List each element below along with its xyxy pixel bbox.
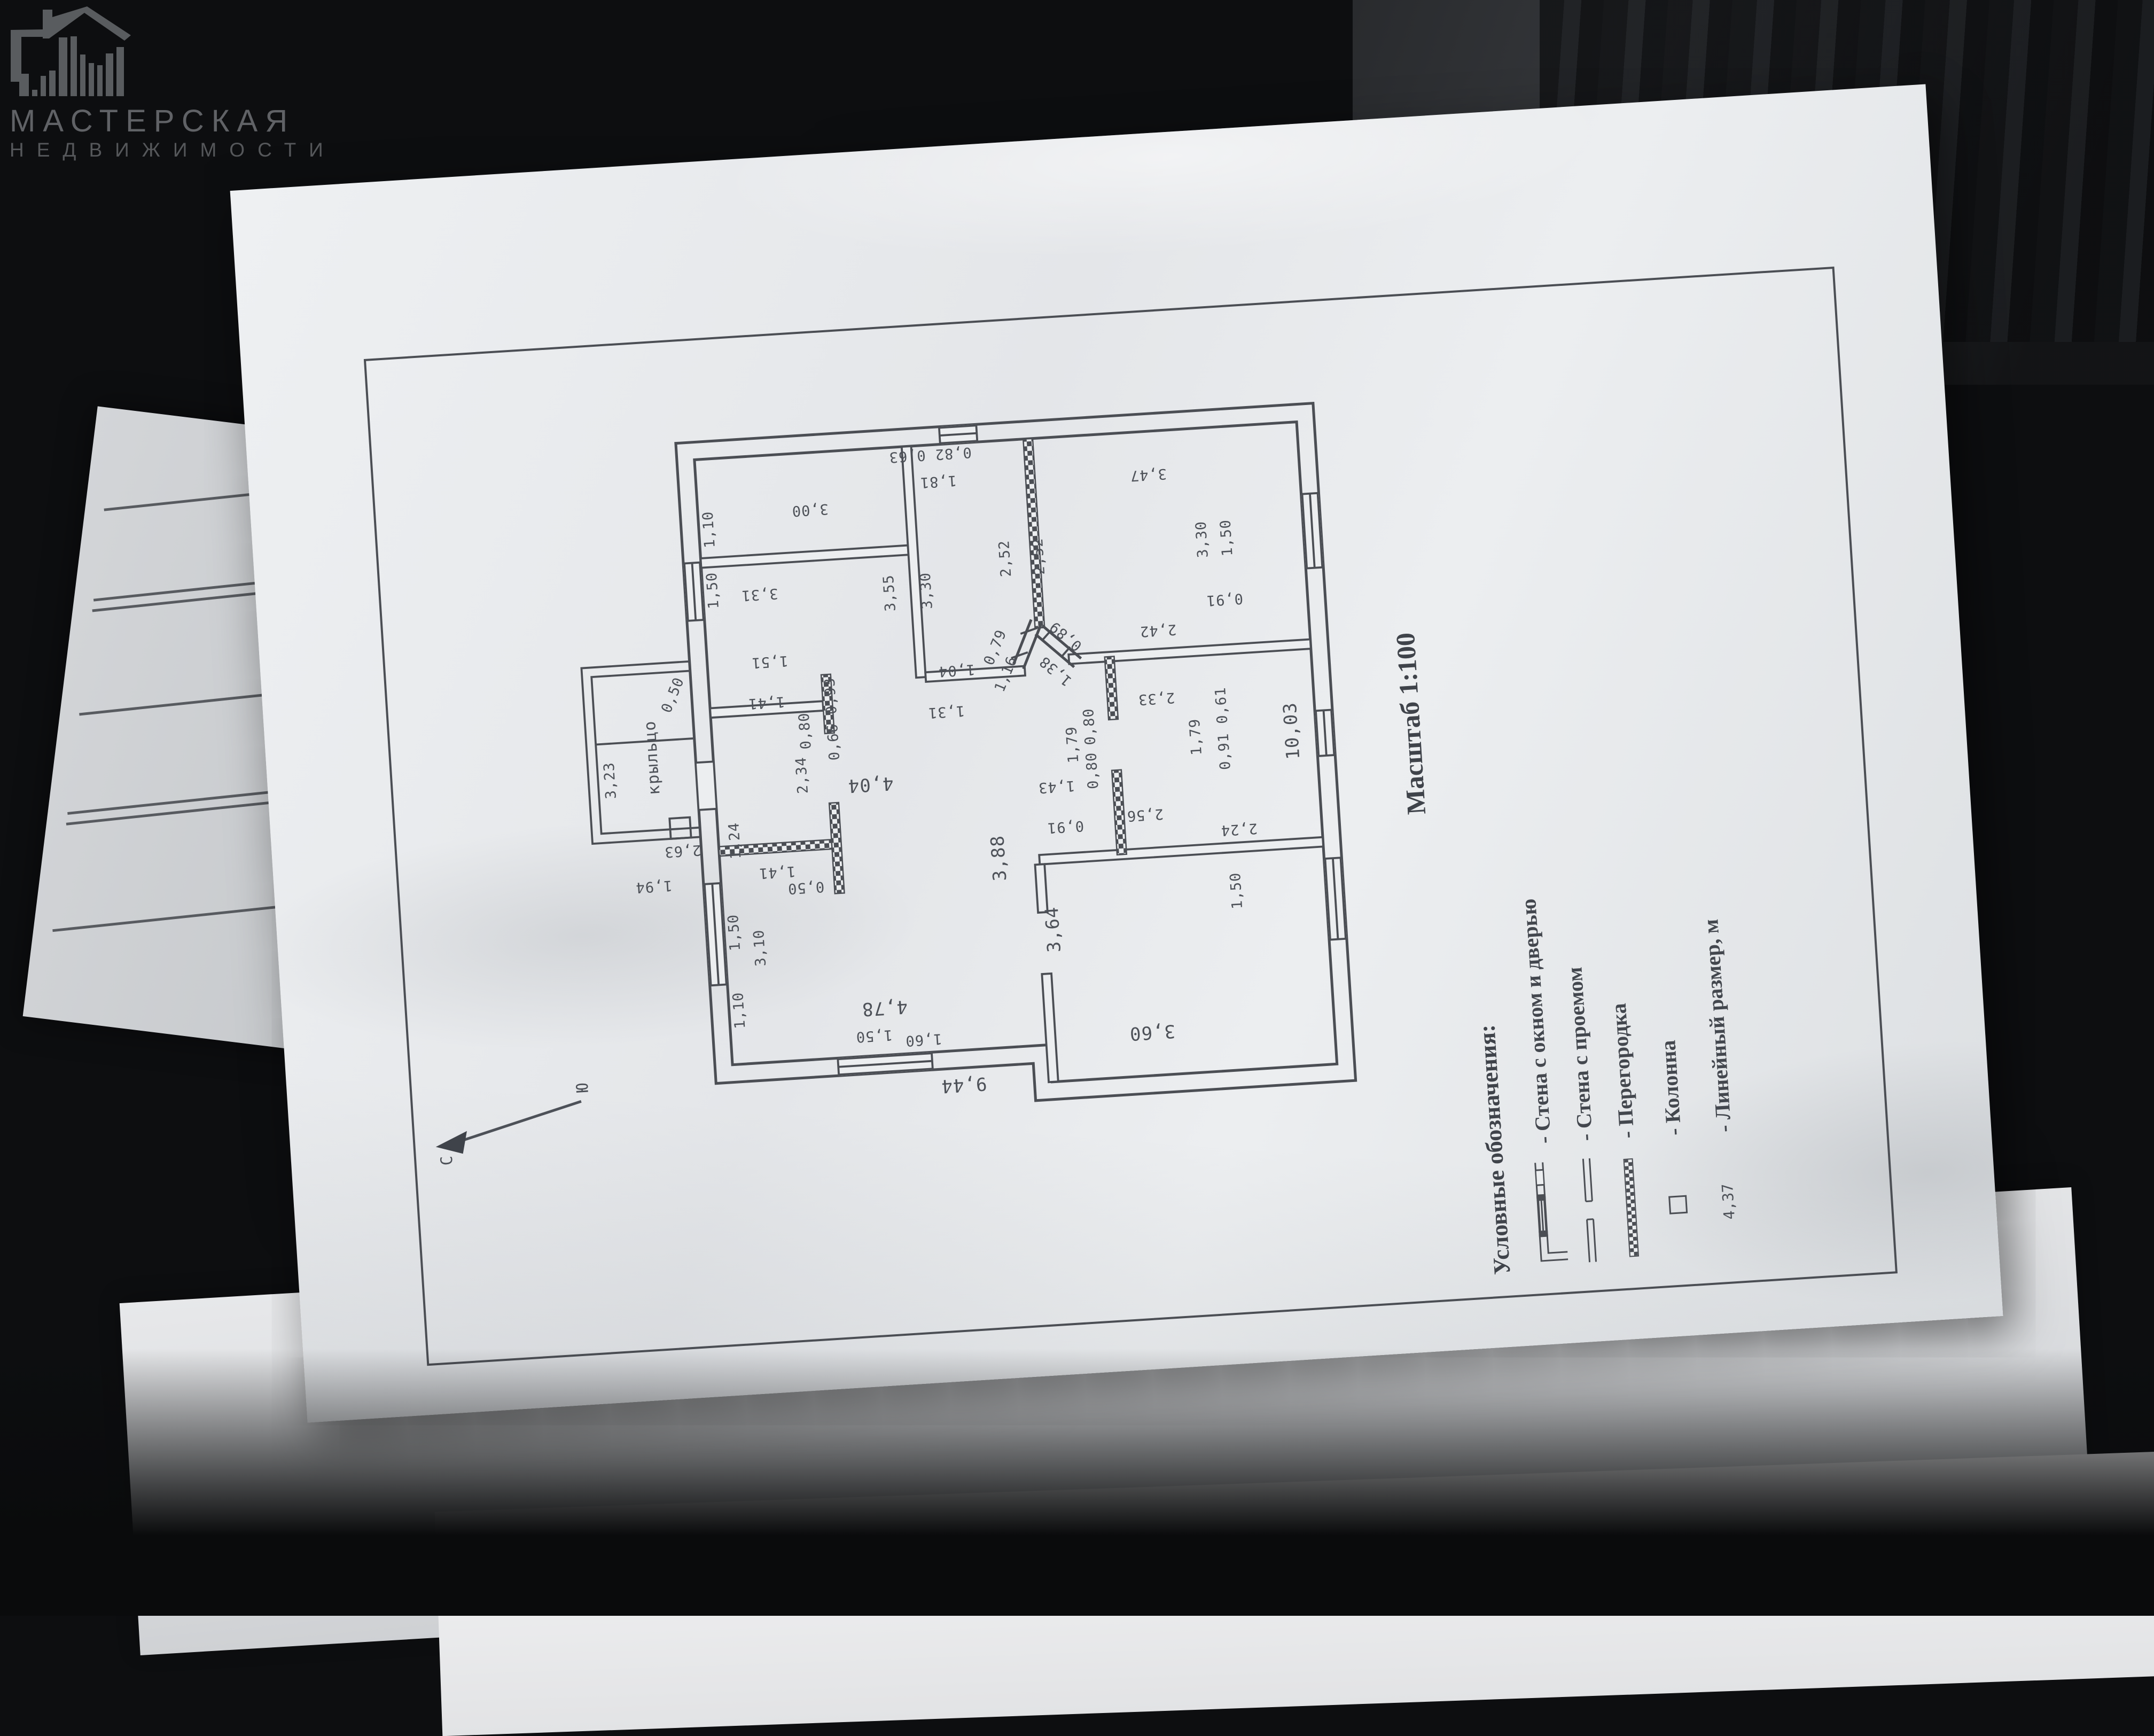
scale-label: Масштаб 1:100 (1390, 632, 1432, 815)
linear-dimension-example: 4,37 (1703, 1141, 1753, 1262)
dimension-label: 1,60 (905, 1030, 943, 1049)
plan-dimension-labels: 1,101,503,101,410,502,340,800,66 0,931,4… (676, 404, 1335, 1120)
dimension-label: 2,24 (1220, 820, 1258, 839)
dimension-label: 1,50 (1218, 519, 1236, 557)
dimension-label: 0,50 (787, 878, 825, 897)
floor-plan-sheet: С Ю (230, 84, 2003, 1422)
dimension-label: 1,43 (1037, 777, 1075, 796)
drawing-frame: С Ю (364, 267, 1898, 1366)
dimension-label: 3,31 (740, 585, 778, 604)
dimension-label: 2,52 (996, 540, 1014, 578)
dimension-label: 1,94 (635, 877, 673, 896)
dimension-label: 2,56 (1126, 806, 1164, 824)
dimension-label: 1,50 (725, 914, 744, 952)
background-floor-shadow (0, 1349, 2154, 1616)
dimension-label: 1,24 (725, 822, 744, 860)
dimension-label: 1,79 (1187, 718, 1205, 756)
dimension-label: 3,23 (601, 761, 620, 799)
dimension-label: 1,79 (1063, 726, 1082, 764)
watermark-line1: МАСТЕРСКАЯ (10, 103, 336, 139)
document-content: С Ю (366, 269, 1895, 1364)
dimension-label: 1,04 (938, 661, 975, 680)
legend: Условные обозначения: (1439, 474, 1516, 1275)
legend-label: - Стена с окном и дверью (1516, 898, 1556, 1145)
dimension-label: 0,91 0,61 (1212, 687, 1234, 770)
dimension-label: 3,64 (1041, 906, 1065, 953)
agency-watermark: МАСТЕРСКАЯ НЕДВИЖИМОСТИ (10, 5, 336, 161)
dimension-label: 0,80 (1083, 752, 1102, 790)
dimension-label: 3,30 (917, 572, 936, 610)
dimension-label: 4,04 (847, 773, 894, 797)
dimension-label: 3,88 (987, 835, 1011, 882)
compass-north-arrow: С Ю (416, 1064, 604, 1171)
dimension-label: 1,51 (751, 652, 789, 671)
dimension-label: 3,55 (880, 574, 899, 612)
dimension-label: 0,89 (1046, 618, 1085, 655)
column-icon (1653, 1145, 1703, 1265)
dimension-label: 1,38 (1036, 653, 1075, 689)
dimension-label: 0,66 0,93 (822, 677, 844, 761)
dimension-label: 0,80 (1081, 707, 1099, 745)
legend-label: - Перегородка (1606, 1002, 1640, 1139)
dimension-label: 1,10 (730, 992, 748, 1030)
undersheet-line (52, 904, 297, 932)
agency-logo-icon (10, 5, 298, 96)
dimension-label: 1,81 (919, 472, 957, 491)
dimension-label: 0,82 0,63 (888, 443, 972, 465)
compass-arrow-icon (416, 1064, 604, 1171)
dimension-label: 2,52 (1029, 538, 1048, 575)
dimension-label: 0,91 (1205, 590, 1243, 609)
dimension-label: 3,10 (751, 929, 769, 967)
compass-south-label: Ю (573, 1083, 592, 1093)
dimension-label: 3,00 (791, 500, 829, 519)
dimension-label: 2,63 (664, 842, 702, 860)
watermark-line2: НЕДВИЖИМОСТИ (10, 139, 336, 161)
dimension-label: 9,44 (940, 1072, 987, 1096)
floor-plan: 1,101,503,101,410,502,340,800,66 0,931,4… (676, 404, 1335, 1120)
dimension-label: 1,10 (700, 511, 719, 549)
dimension-label: 0,80 (796, 712, 815, 750)
dimension-label: 3,47 (1129, 465, 1167, 484)
legend-label: - Колонна (1655, 1039, 1686, 1136)
dimension-label: 4,78 (861, 996, 908, 1020)
dimension-label: 1,50 (1227, 872, 1246, 910)
dimension-label: 2,42 (1140, 621, 1177, 640)
dimension-label: 10,03 (1279, 702, 1304, 760)
legend-label: - Линейный размер, м (1698, 918, 1736, 1133)
compass-north-label: С (438, 1155, 457, 1166)
dimension-label: 2,34 (792, 757, 811, 795)
dimension-label: 1,31 (927, 703, 965, 721)
dimension-label: 3,30 (1192, 520, 1211, 558)
dimension-label: 0,91 (1047, 818, 1084, 836)
dimension-label: 1,50 (704, 572, 722, 610)
dimension-label: 1,41 (758, 863, 796, 882)
dimension-label: 1,41 (747, 694, 785, 712)
dimension-label: 3,60 (1129, 1020, 1176, 1044)
partition-icon (1606, 1148, 1656, 1268)
legend-label: - Стена с проемом (1562, 966, 1597, 1141)
dimension-label: крыльцо (641, 720, 664, 796)
example-dimension-value: 4,37 (1718, 1183, 1738, 1220)
dimension-label: 0,50 (658, 675, 688, 715)
dimension-label: 1,50 (855, 1026, 893, 1045)
dimension-label: 2,33 (1137, 689, 1175, 708)
